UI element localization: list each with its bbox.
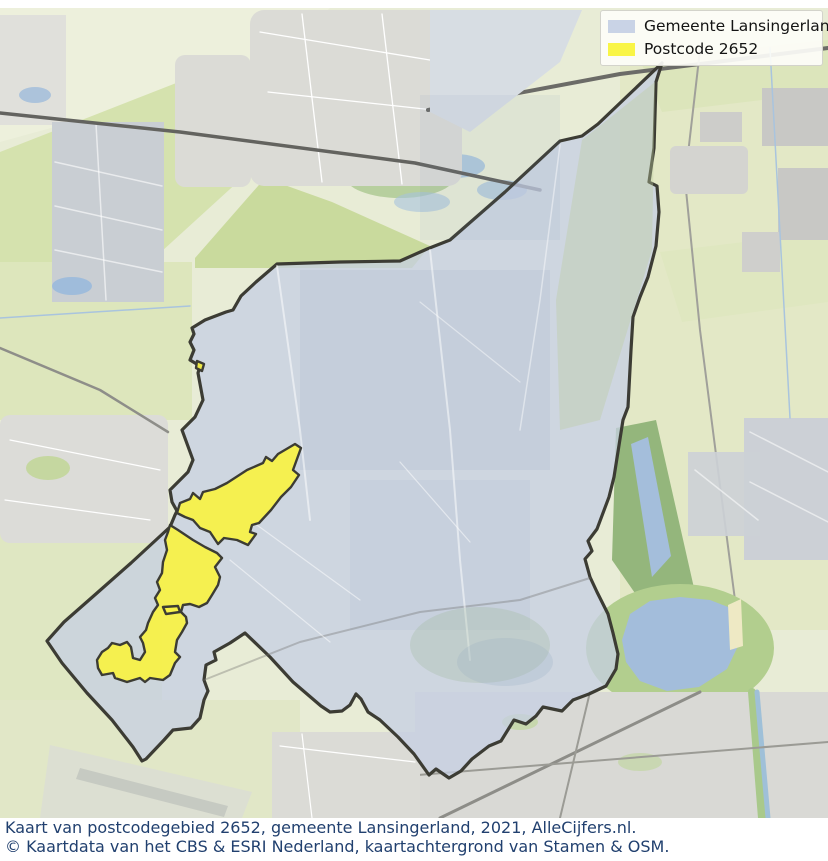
map-background-shape <box>688 452 760 536</box>
legend-label-gemeente: Gemeente Lansingerland <box>644 17 828 35</box>
postcode-2652-area <box>196 361 204 371</box>
map-legend: Gemeente Lansingerland Postcode 2652 <box>600 10 823 66</box>
map-background-shape <box>778 168 828 240</box>
map-background-shape <box>52 277 92 295</box>
figure-top-margin <box>0 0 828 8</box>
map-background-shape <box>0 415 168 543</box>
municipality-texture <box>457 638 553 686</box>
map-background-shape <box>272 732 420 818</box>
municipality-texture <box>420 95 560 240</box>
municipality-texture <box>350 480 530 630</box>
caption: Kaart van postcodegebied 2652, gemeente … <box>5 819 825 856</box>
caption-line-1: Kaart van postcodegebied 2652, gemeente … <box>5 819 825 838</box>
map-background-shape <box>670 146 748 194</box>
map-background-shape <box>19 87 51 103</box>
map-background-shape <box>175 55 251 187</box>
legend-item-gemeente: Gemeente Lansingerland <box>608 17 814 35</box>
map-background-shape <box>728 599 743 650</box>
map-background-shape <box>0 15 66 125</box>
legend-item-postcode: Postcode 2652 <box>608 40 814 58</box>
legend-swatch-postcode-icon <box>608 43 635 56</box>
map-page: { "legend": { "items": [ {"id": "gemeent… <box>0 0 828 861</box>
map-background-shape <box>742 232 780 272</box>
map-figure <box>0 0 828 861</box>
legend-swatch-gemeente-icon <box>608 20 635 33</box>
municipality-texture <box>300 270 550 470</box>
map-background-shape <box>700 112 742 142</box>
legend-label-postcode: Postcode 2652 <box>644 40 758 58</box>
map-canvas <box>0 0 828 861</box>
map-background-shape <box>26 456 70 480</box>
postcode-2652-area <box>163 606 180 614</box>
map-background-shape <box>52 122 164 302</box>
caption-line-2: © Kaartdata van het CBS & ESRI Nederland… <box>5 838 825 857</box>
